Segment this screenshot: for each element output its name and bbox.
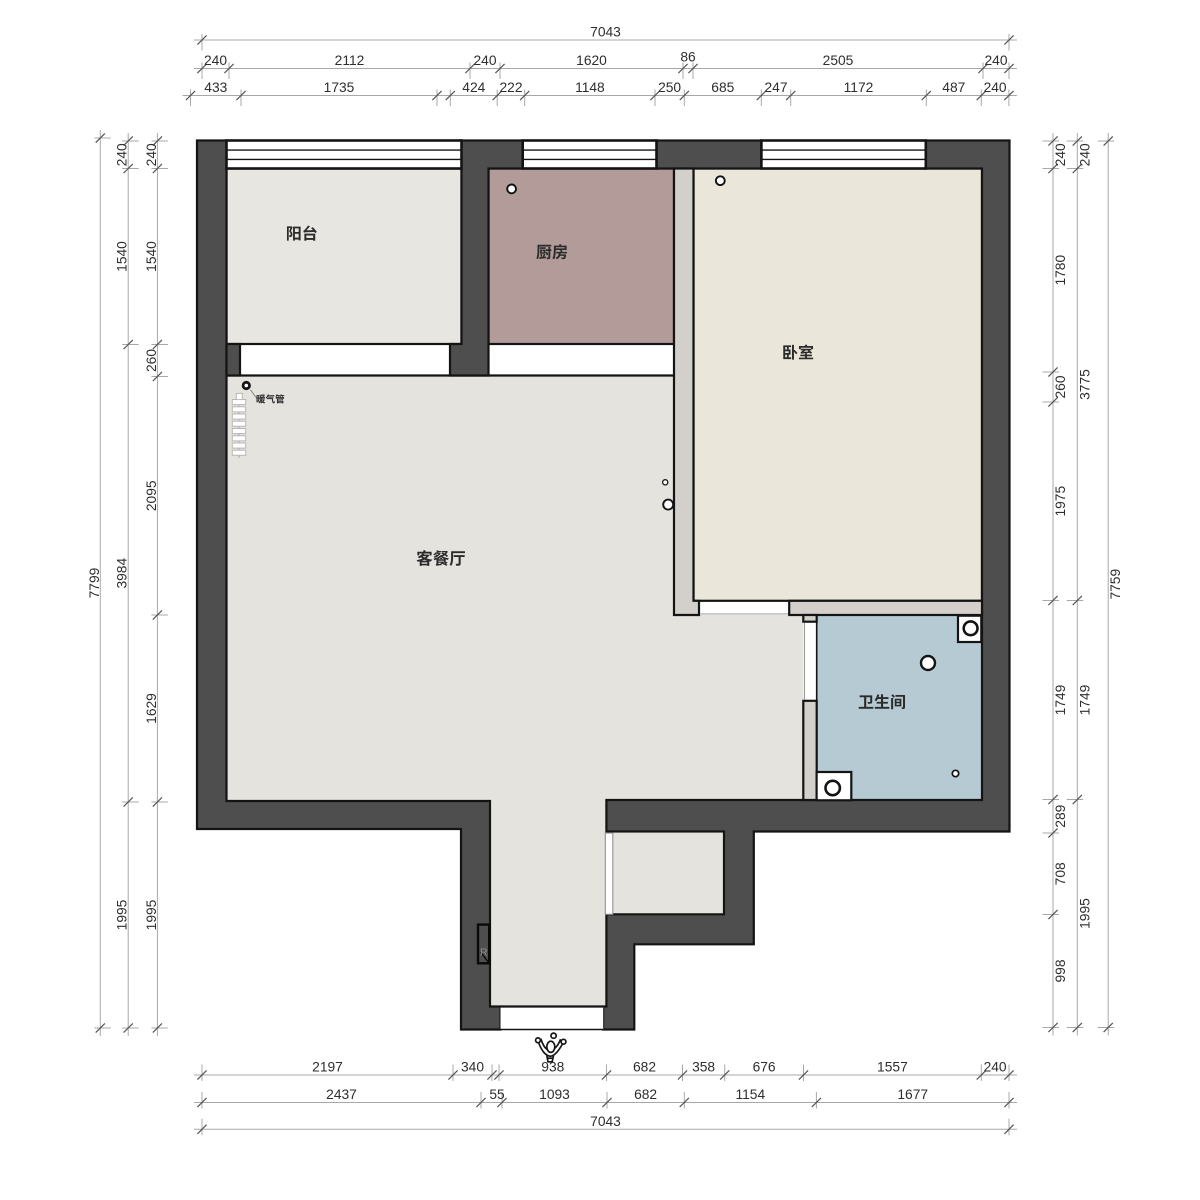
- svg-text:240: 240: [984, 80, 1007, 95]
- svg-text:240: 240: [144, 143, 159, 166]
- svg-text:1620: 1620: [576, 53, 607, 68]
- svg-text:3775: 3775: [1077, 369, 1092, 400]
- svg-text:7043: 7043: [590, 1114, 621, 1129]
- svg-text:240: 240: [204, 53, 227, 68]
- svg-text:708: 708: [1053, 862, 1068, 885]
- svg-text:424: 424: [462, 80, 485, 95]
- svg-text:487: 487: [942, 80, 965, 95]
- svg-text:7799: 7799: [87, 567, 102, 598]
- svg-text:240: 240: [473, 53, 496, 68]
- svg-text:R: R: [480, 947, 488, 959]
- svg-text:1780: 1780: [1053, 255, 1068, 286]
- svg-text:1995: 1995: [115, 899, 130, 930]
- svg-text:1749: 1749: [1053, 684, 1068, 715]
- svg-text:7759: 7759: [1108, 569, 1123, 600]
- svg-text:1172: 1172: [844, 80, 874, 95]
- svg-text:1148: 1148: [575, 80, 605, 95]
- svg-text:1677: 1677: [897, 1087, 928, 1102]
- svg-text:2197: 2197: [312, 1060, 343, 1075]
- svg-text:1749: 1749: [1077, 684, 1092, 715]
- svg-text:2112: 2112: [335, 53, 365, 68]
- svg-text:1093: 1093: [539, 1087, 570, 1102]
- svg-text:2095: 2095: [144, 480, 159, 511]
- svg-text:1540: 1540: [144, 241, 159, 272]
- svg-text:240: 240: [115, 143, 130, 166]
- svg-text:1995: 1995: [1077, 898, 1092, 929]
- svg-text:1629: 1629: [144, 693, 159, 724]
- svg-text:358: 358: [692, 1060, 715, 1075]
- svg-text:998: 998: [1053, 959, 1068, 982]
- svg-text:1735: 1735: [324, 80, 355, 95]
- svg-text:682: 682: [633, 1060, 656, 1075]
- svg-text:7043: 7043: [590, 25, 621, 40]
- svg-text:433: 433: [204, 80, 227, 95]
- svg-text:1540: 1540: [115, 241, 130, 272]
- svg-text:289: 289: [1053, 804, 1068, 827]
- svg-text:260: 260: [1053, 375, 1068, 398]
- svg-text:1154: 1154: [735, 1087, 765, 1102]
- svg-text:1557: 1557: [877, 1060, 908, 1075]
- svg-text:1995: 1995: [144, 899, 159, 930]
- svg-text:247: 247: [764, 80, 787, 95]
- svg-text:2437: 2437: [326, 1087, 357, 1102]
- svg-text:340: 340: [461, 1060, 484, 1075]
- svg-text:222: 222: [499, 80, 522, 95]
- svg-text:2505: 2505: [823, 53, 854, 68]
- svg-text:55: 55: [489, 1087, 505, 1102]
- svg-text:240: 240: [984, 53, 1007, 68]
- svg-text:250: 250: [658, 80, 681, 95]
- svg-text:260: 260: [144, 349, 159, 372]
- svg-text:240: 240: [984, 1060, 1007, 1075]
- svg-text:1975: 1975: [1053, 486, 1068, 517]
- svg-text:3984: 3984: [115, 558, 130, 589]
- svg-text:685: 685: [711, 80, 734, 95]
- svg-text:682: 682: [634, 1087, 657, 1102]
- svg-text:240: 240: [1053, 143, 1068, 166]
- svg-text:676: 676: [753, 1060, 776, 1075]
- svg-text:938: 938: [541, 1060, 564, 1075]
- svg-text:86: 86: [680, 50, 696, 65]
- svg-text:240: 240: [1077, 143, 1092, 166]
